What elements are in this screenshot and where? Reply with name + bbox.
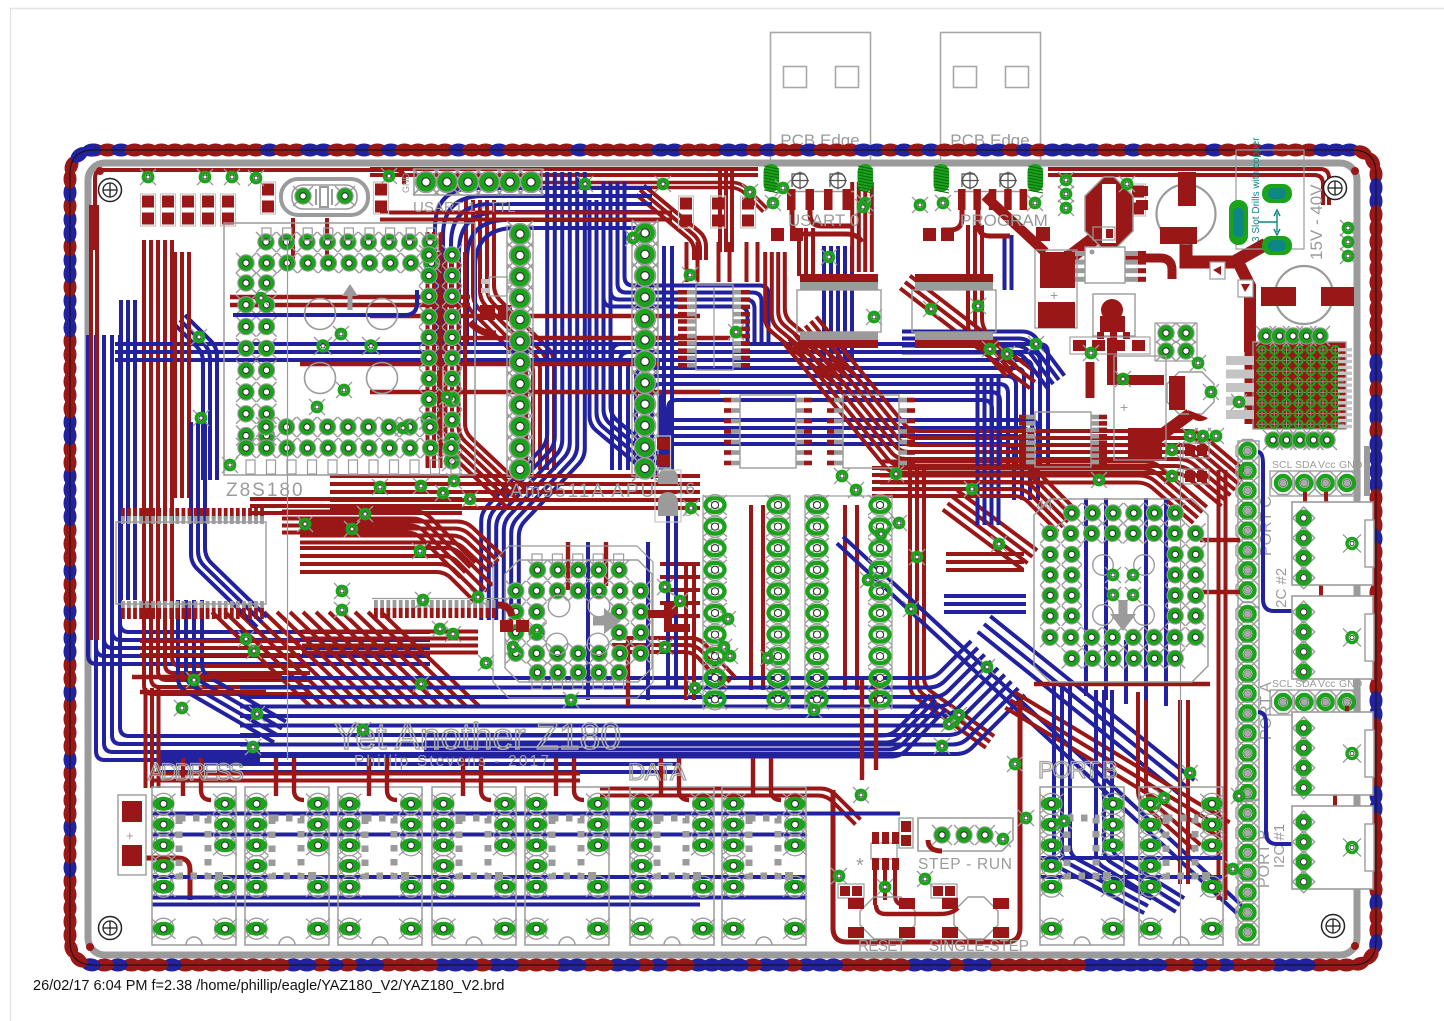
svg-text:44: 44 — [1036, 497, 1053, 514]
svg-text:PORT C: PORT C — [1258, 496, 1275, 556]
svg-text:SDA: SDA — [1295, 459, 1317, 471]
svg-text:+: + — [1120, 399, 1128, 415]
svg-text:GND: GND — [401, 173, 411, 194]
svg-text:+: + — [1050, 287, 1058, 303]
svg-text:I2C #2: I2C #2 — [1273, 568, 1290, 612]
svg-text:SINGLE-STEP: SINGLE-STEP — [929, 938, 1029, 955]
svg-text:Yet Another Z180: Yet Another Z180 — [334, 716, 621, 757]
svg-text:Vcc: Vcc — [1318, 459, 1336, 471]
svg-text:*: * — [856, 855, 864, 877]
svg-text:Am9511A APU: Am9511A APU — [510, 481, 656, 502]
svg-text:Phillip Stevens - 2017: Phillip Stevens - 2017 — [354, 753, 549, 770]
svg-text:SCL: SCL — [1272, 678, 1293, 690]
svg-text:USART 1 - TTL: USART 1 - TTL — [413, 199, 516, 216]
svg-text:PROGRAM: PROGRAM — [960, 211, 1048, 230]
svg-text:USART 0: USART 0 — [788, 211, 859, 230]
svg-text:Z8S180: Z8S180 — [226, 480, 305, 501]
svg-text:15V - 40V: 15V - 40V — [1307, 184, 1326, 260]
svg-text:3 Slot Drills with copper: 3 Slot Drills with copper — [1251, 137, 1262, 242]
svg-text:+: + — [126, 828, 134, 843]
svg-text:RESET: RESET — [858, 938, 907, 955]
svg-text:PORT B: PORT B — [1256, 829, 1273, 888]
svg-text:SCL: SCL — [1272, 459, 1293, 471]
svg-text:STEP - RUN: STEP - RUN — [918, 856, 1012, 873]
svg-text:ADDRESS: ADDRESS — [148, 759, 244, 786]
svg-text:26/02/17 6:04 PM f=2.38 /hom: 26/02/17 6:04 PM f=2.38 /home/phillip/ea… — [33, 978, 504, 994]
svg-text:DATA: DATA — [628, 759, 686, 786]
svg-text:GND: GND — [1339, 459, 1363, 471]
svg-text:16: 16 — [676, 479, 695, 498]
svg-text:PORT B: PORT B — [1038, 757, 1118, 784]
